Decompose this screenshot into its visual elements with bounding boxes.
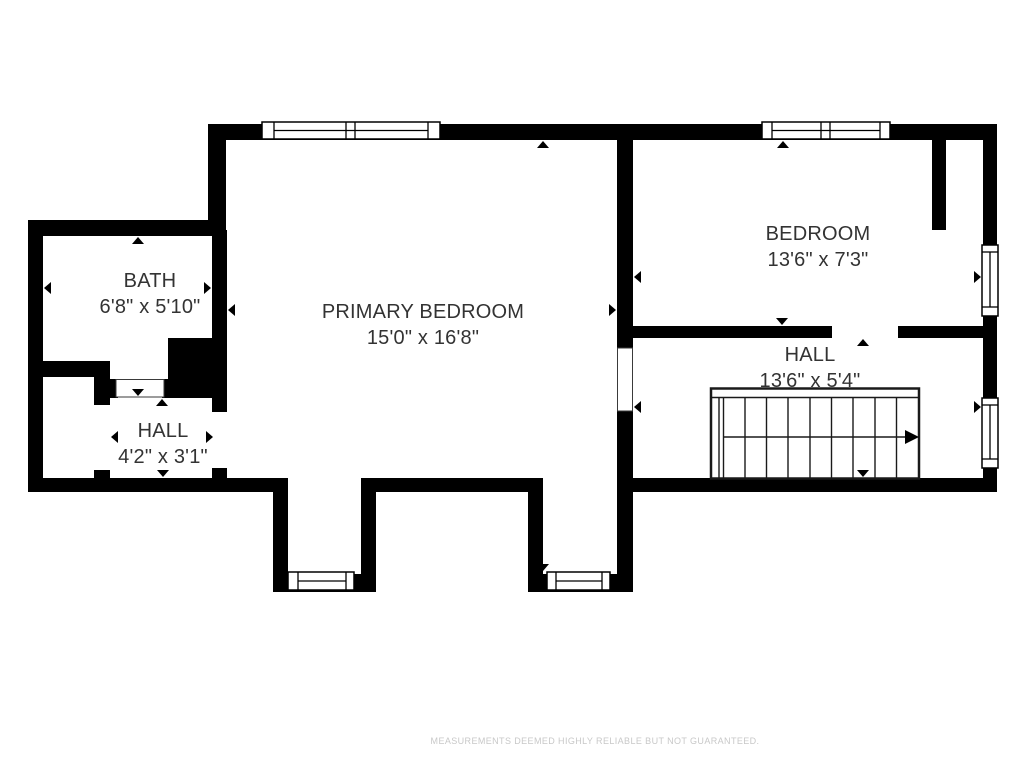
room-name: HALL <box>118 418 208 444</box>
wall-bay1-right <box>361 478 376 592</box>
dimension-arrow-icon <box>228 304 235 316</box>
room-name: HALL <box>760 342 861 368</box>
floor-plan-page: BATH 6'8" x 5'10" HALL 4'2" x 3'1" PRIMA… <box>0 0 1024 768</box>
dimension-arrow-icon <box>111 431 118 443</box>
dimension-arrow-icon <box>777 141 789 148</box>
wall-alcove-right-upper <box>94 377 110 405</box>
dimension-arrow-icon <box>537 141 549 148</box>
dimension-arrow-icon <box>634 401 641 413</box>
bath-door-opening <box>116 380 164 398</box>
dimension-arrow-icon <box>132 237 144 244</box>
room-dimensions: 13'6" x 7'3" <box>766 247 871 273</box>
dimension-arrow-icon <box>157 470 169 477</box>
dimension-arrow-icon <box>44 282 51 294</box>
dimension-arrow-icon <box>204 282 211 294</box>
dimension-arrow-icon <box>974 271 981 283</box>
window-top-bedroom-icon <box>762 122 890 139</box>
room-dimensions: 15'0" x 16'8" <box>322 325 524 351</box>
dimension-arrow-icon <box>776 318 788 325</box>
room-label-bath: BATH 6'8" x 5'10" <box>100 268 201 320</box>
wall-upper-left-vertical <box>208 124 226 236</box>
dimension-arrow-icon <box>156 399 168 406</box>
room-dimensions: 13'6" x 5'4" <box>760 368 861 394</box>
room-label-bedroom: BEDROOM 13'6" x 7'3" <box>766 221 871 273</box>
stairs-icon <box>711 389 919 479</box>
wall-bath-top <box>28 220 226 236</box>
room-dimensions: 4'2" x 3'1" <box>118 444 208 470</box>
dimension-arrow-icon <box>609 304 616 316</box>
window-bay-right-icon <box>547 572 610 590</box>
dimension-arrow-icon <box>634 271 641 283</box>
primary-to-hall-opening <box>618 348 633 411</box>
wall-left-hall-right-upper <box>212 398 227 412</box>
room-dimensions: 6'8" x 5'10" <box>100 294 201 320</box>
window-bay-left-icon <box>288 572 354 590</box>
room-name: BEDROOM <box>766 221 871 247</box>
wall-chimney-block <box>168 338 226 398</box>
floor-plan-svg <box>0 0 1024 768</box>
wall-bath-bottom-left <box>28 361 110 377</box>
wall-center-upper <box>617 140 633 348</box>
wall-bottom-left <box>28 478 288 492</box>
wall-left-outer <box>28 220 43 492</box>
room-label-hall-left: HALL 4'2" x 3'1" <box>118 418 208 470</box>
room-label-primary-bedroom: PRIMARY BEDROOM 15'0" x 16'8" <box>322 299 524 351</box>
room-label-hall-right: HALL 13'6" x 5'4" <box>760 342 861 394</box>
wall-bottom-middle <box>361 478 543 492</box>
disclaimer-text: MEASUREMENTS DEEMED HIGHLY RELIABLE BUT … <box>431 736 760 746</box>
room-name: BATH <box>100 268 201 294</box>
window-hall-side-icon <box>982 398 998 468</box>
wall-bedroom-hall-divider-left <box>633 326 832 338</box>
dimension-arrow-icon <box>974 401 981 413</box>
wall-center-lower <box>617 411 633 592</box>
wall-right-hall-bottom <box>633 478 997 492</box>
wall-bedroom-closet-stub <box>932 140 946 230</box>
window-top-primary-icon <box>262 122 440 139</box>
window-bedroom-side-icon <box>982 245 998 316</box>
room-name: PRIMARY BEDROOM <box>322 299 524 325</box>
wall-bedroom-hall-divider-right <box>898 326 985 338</box>
